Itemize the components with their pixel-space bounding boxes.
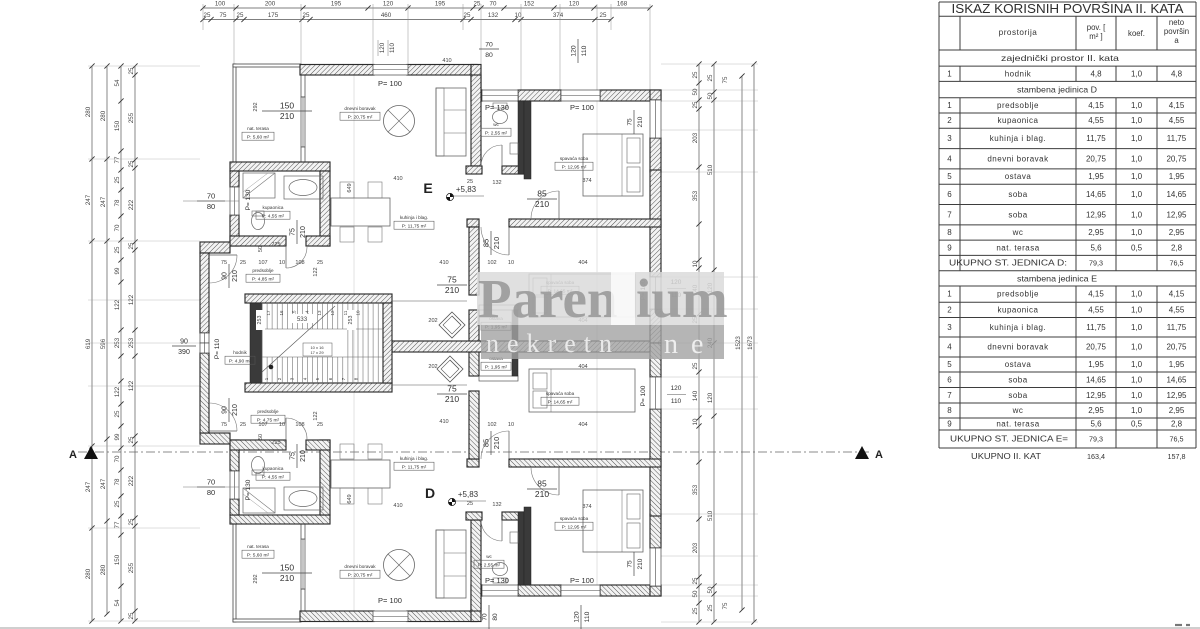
svg-text:10: 10 — [508, 260, 514, 266]
svg-text:99: 99 — [114, 433, 121, 440]
svg-text:12: 12 — [330, 310, 335, 316]
svg-text:5: 5 — [947, 360, 952, 369]
svg-text:510: 510 — [707, 510, 714, 521]
svg-text:80: 80 — [207, 202, 215, 211]
svg-text:210: 210 — [445, 285, 459, 295]
svg-text:25: 25 — [692, 362, 699, 369]
svg-text:6: 6 — [947, 190, 952, 199]
svg-text:1,0: 1,0 — [1131, 69, 1143, 78]
svg-text:4,15: 4,15 — [1169, 290, 1185, 299]
svg-text:1,95: 1,95 — [1169, 172, 1185, 181]
svg-text:50: 50 — [258, 434, 264, 440]
svg-text:374: 374 — [553, 12, 564, 19]
svg-text:4,15: 4,15 — [1088, 290, 1104, 299]
svg-text:25: 25 — [464, 12, 471, 19]
svg-text:25: 25 — [692, 577, 699, 584]
svg-text:hodnik: hodnik — [233, 350, 247, 355]
svg-text:163,4: 163,4 — [1087, 452, 1105, 461]
svg-text:nat. terasa: nat. terasa — [247, 544, 269, 549]
svg-text:70: 70 — [207, 478, 215, 487]
svg-text:P= 130: P= 130 — [485, 103, 509, 112]
svg-text:120: 120 — [569, 1, 580, 8]
svg-text:25: 25 — [204, 12, 211, 19]
svg-text:P= 100: P= 100 — [378, 79, 402, 88]
svg-text:P= 130: P= 130 — [245, 479, 252, 500]
svg-text:107: 107 — [258, 260, 267, 266]
svg-text:stambena jedinica E: stambena jedinica E — [1017, 274, 1097, 284]
svg-text:404: 404 — [578, 422, 587, 428]
svg-text:E: E — [423, 180, 432, 196]
svg-text:75: 75 — [221, 260, 227, 266]
svg-text:280: 280 — [100, 564, 107, 575]
svg-text:1,0: 1,0 — [1131, 172, 1143, 181]
svg-text:25: 25 — [114, 176, 121, 183]
svg-text:210: 210 — [492, 437, 501, 450]
svg-text:14,65: 14,65 — [1166, 375, 1187, 384]
svg-text:90: 90 — [180, 339, 188, 346]
svg-text:dnevni boravak: dnevni boravak — [987, 343, 1049, 352]
svg-text:2,95: 2,95 — [1169, 228, 1185, 237]
svg-text:1,0: 1,0 — [1131, 134, 1143, 143]
svg-text:76,5: 76,5 — [1170, 259, 1184, 268]
svg-text:P= 100: P= 100 — [378, 596, 402, 605]
svg-text:1,0: 1,0 — [1131, 360, 1143, 369]
svg-text:P: 4,90 m²: P: 4,90 m² — [229, 359, 252, 365]
svg-text:4,55: 4,55 — [1169, 116, 1185, 125]
svg-text:54: 54 — [114, 79, 121, 86]
svg-text:253: 253 — [128, 337, 135, 348]
svg-text:10: 10 — [508, 422, 514, 428]
svg-text:4,55: 4,55 — [1169, 305, 1185, 314]
svg-text:132: 132 — [492, 502, 501, 508]
svg-text:nekretn: nekretn — [486, 329, 620, 358]
svg-text:210: 210 — [637, 558, 644, 569]
svg-text:50: 50 — [692, 590, 699, 597]
svg-text:75: 75 — [447, 384, 457, 394]
svg-text:75: 75 — [290, 452, 297, 460]
svg-text:P: 4,55 m²: P: 4,55 m² — [262, 214, 285, 220]
svg-text:210: 210 — [445, 394, 459, 404]
svg-text:površin: površin — [1164, 27, 1189, 36]
svg-text:+5,83: +5,83 — [458, 490, 479, 499]
svg-text:150: 150 — [114, 120, 121, 131]
svg-text:1523: 1523 — [735, 336, 742, 350]
svg-text:25: 25 — [474, 1, 481, 8]
svg-text:4: 4 — [947, 154, 952, 163]
svg-text:120: 120 — [707, 392, 714, 403]
svg-text:25: 25 — [317, 422, 323, 428]
svg-text:25: 25 — [240, 260, 246, 266]
svg-text:510: 510 — [707, 164, 714, 175]
svg-text:649: 649 — [347, 494, 353, 503]
svg-text:390: 390 — [178, 349, 190, 356]
svg-text:77: 77 — [114, 156, 121, 163]
svg-text:ostava: ostava — [1005, 360, 1032, 369]
svg-text:122: 122 — [114, 299, 121, 310]
svg-text:5,6: 5,6 — [1090, 243, 1102, 252]
svg-text:9: 9 — [947, 420, 952, 429]
svg-text:122: 122 — [313, 267, 319, 276]
svg-text:A: A — [69, 449, 77, 461]
svg-text:1,95: 1,95 — [1088, 360, 1104, 369]
svg-text:120: 120 — [574, 611, 581, 623]
svg-text:75: 75 — [290, 228, 297, 236]
svg-text:12,95: 12,95 — [1166, 391, 1187, 400]
svg-text:25: 25 — [128, 67, 135, 74]
svg-text:292: 292 — [253, 102, 259, 111]
svg-text:1,0: 1,0 — [1131, 323, 1143, 332]
svg-text:203: 203 — [692, 132, 699, 143]
svg-text:25: 25 — [114, 410, 121, 417]
svg-text:75: 75 — [221, 422, 227, 428]
svg-text:25: 25 — [303, 12, 310, 19]
svg-text:70: 70 — [114, 224, 121, 231]
svg-text:wc: wc — [1012, 228, 1024, 237]
svg-text:10: 10 — [279, 260, 285, 266]
svg-text:4,55: 4,55 — [1088, 116, 1104, 125]
svg-text:1,0: 1,0 — [1131, 116, 1143, 125]
svg-text:75: 75 — [447, 275, 457, 285]
svg-text:200: 200 — [265, 1, 276, 8]
svg-text:2: 2 — [947, 305, 952, 314]
svg-text:255: 255 — [128, 562, 135, 573]
svg-text:50: 50 — [707, 586, 714, 593]
svg-text:102: 102 — [487, 260, 496, 266]
svg-text:203: 203 — [692, 542, 699, 553]
svg-text:195: 195 — [435, 1, 446, 8]
svg-text:14,65: 14,65 — [1166, 190, 1187, 199]
svg-text:280: 280 — [85, 568, 92, 579]
svg-text:1: 1 — [947, 69, 952, 78]
svg-text:4,8: 4,8 — [1090, 69, 1102, 78]
svg-text:stambena jedinica D: stambena jedinica D — [1017, 85, 1097, 95]
svg-text:13: 13 — [317, 310, 322, 316]
svg-text:5,6: 5,6 — [1090, 420, 1102, 429]
svg-text:P: 12,95 m²: P: 12,95 m² — [562, 165, 587, 171]
svg-text:1,0: 1,0 — [1131, 343, 1143, 352]
svg-text:P: 2,55 m²: P: 2,55 m² — [478, 563, 501, 569]
svg-text:122: 122 — [128, 380, 135, 391]
svg-text:649: 649 — [347, 183, 353, 192]
svg-text:70: 70 — [490, 1, 497, 8]
svg-text:90: 90 — [222, 406, 229, 414]
svg-text:222: 222 — [128, 199, 135, 210]
svg-text:17: 17 — [266, 310, 271, 316]
svg-text:110: 110 — [584, 611, 591, 622]
svg-text:253: 253 — [114, 337, 121, 348]
svg-text:76,5: 76,5 — [1170, 435, 1184, 444]
svg-text:157,8: 157,8 — [1168, 452, 1186, 461]
svg-text:ISKAZ KORISNIH POVRŠINA II. KA: ISKAZ KORISNIH POVRŠINA II. KATA — [952, 1, 1185, 16]
svg-text:predsoblje: predsoblje — [997, 290, 1039, 299]
svg-text:3: 3 — [947, 323, 952, 332]
svg-text:247: 247 — [85, 194, 92, 205]
svg-text:25: 25 — [128, 518, 135, 525]
svg-text:1,0: 1,0 — [1131, 190, 1143, 199]
svg-text:25: 25 — [128, 612, 135, 619]
svg-text:1,95: 1,95 — [1088, 172, 1104, 181]
svg-text:353: 353 — [692, 484, 699, 495]
svg-text:11,75: 11,75 — [1086, 134, 1106, 143]
svg-text:D: D — [425, 485, 435, 501]
svg-text:75: 75 — [220, 12, 227, 19]
svg-text:UKUPNO ST. JEDNICA D:: UKUPNO ST. JEDNICA D: — [949, 259, 1067, 268]
svg-text:410: 410 — [439, 260, 448, 266]
svg-text:120: 120 — [379, 42, 386, 53]
svg-text:P: 12,95 m²: P: 12,95 m² — [562, 525, 587, 531]
svg-text:1,0: 1,0 — [1131, 305, 1143, 314]
svg-text:7: 7 — [947, 210, 952, 219]
svg-text:16: 16 — [279, 310, 284, 316]
svg-text:50: 50 — [707, 92, 714, 99]
svg-text:90: 90 — [222, 272, 229, 280]
svg-text:132: 132 — [492, 180, 501, 186]
svg-text:85: 85 — [537, 479, 547, 489]
svg-text:Paren: Paren — [478, 268, 618, 329]
svg-text:80: 80 — [492, 613, 499, 621]
svg-text:202: 202 — [428, 364, 437, 370]
svg-text:kupaonica: kupaonica — [263, 205, 284, 210]
svg-text:75: 75 — [627, 118, 634, 126]
svg-text:25: 25 — [240, 422, 246, 428]
svg-text:wc: wc — [486, 554, 492, 559]
svg-text:20,75: 20,75 — [1086, 154, 1107, 163]
svg-text:404: 404 — [578, 364, 587, 370]
svg-text:25: 25 — [114, 246, 121, 253]
svg-text:P: 2,55 m²: P: 2,55 m² — [485, 131, 508, 137]
svg-text:0,5: 0,5 — [1131, 420, 1143, 429]
svg-text:1673: 1673 — [747, 336, 754, 350]
svg-text:7: 7 — [947, 391, 952, 400]
svg-text:596: 596 — [100, 338, 107, 349]
svg-text:A: A — [875, 449, 883, 461]
svg-text:225: 225 — [271, 440, 280, 446]
svg-text:210: 210 — [637, 116, 644, 127]
svg-text:54: 54 — [114, 599, 121, 606]
svg-text:460: 460 — [381, 12, 392, 19]
svg-text:25: 25 — [600, 12, 607, 19]
svg-text:79,3: 79,3 — [1089, 259, 1103, 268]
svg-text:374: 374 — [582, 178, 591, 184]
svg-text:1,0: 1,0 — [1131, 228, 1143, 237]
svg-text:2,8: 2,8 — [1171, 243, 1183, 252]
svg-text:12,95: 12,95 — [1086, 210, 1107, 219]
svg-text:2,95: 2,95 — [1088, 406, 1104, 415]
svg-text:120: 120 — [571, 45, 578, 57]
svg-text:+5,83: +5,83 — [456, 185, 477, 194]
svg-text:zajednički prostor II. kata: zajednički prostor II. kata — [1001, 53, 1119, 63]
svg-text:predsoblje: predsoblje — [997, 101, 1039, 110]
svg-text:kuhinja i blag.: kuhinja i blag. — [400, 215, 428, 220]
svg-text:280: 280 — [85, 106, 92, 117]
svg-text:kupaonica: kupaonica — [263, 466, 284, 471]
svg-text:P: 4,55 m²: P: 4,55 m² — [262, 475, 285, 481]
svg-text:110: 110 — [671, 398, 682, 405]
svg-text:UKUPNO ST. JEDNICA E=: UKUPNO ST. JEDNICA E= — [950, 435, 1068, 444]
svg-text:kupaonica: kupaonica — [998, 305, 1039, 314]
svg-text:100: 100 — [215, 1, 226, 8]
svg-text:140: 140 — [692, 390, 699, 401]
svg-text:dnevni boravak: dnevni boravak — [344, 106, 376, 111]
svg-text:P: 5,60 m²: P: 5,60 m² — [247, 135, 270, 141]
svg-text:77: 77 — [114, 521, 121, 528]
svg-text:nat. terasa: nat. terasa — [996, 420, 1039, 429]
svg-text:m² ]: m² ] — [1089, 32, 1102, 41]
svg-text:25: 25 — [128, 436, 135, 443]
svg-text:soba: soba — [1008, 210, 1027, 219]
svg-text:210: 210 — [535, 489, 549, 499]
svg-text:70: 70 — [114, 455, 121, 462]
svg-text:1,0: 1,0 — [1131, 290, 1143, 299]
svg-text:122: 122 — [128, 294, 135, 305]
svg-text:soba: soba — [1008, 375, 1027, 384]
svg-text:25: 25 — [707, 604, 714, 611]
svg-text:nat. terasa: nat. terasa — [996, 243, 1039, 252]
svg-text:P= 130: P= 130 — [245, 189, 252, 210]
svg-text:14,65: 14,65 — [1086, 190, 1107, 199]
svg-text:150: 150 — [280, 563, 294, 573]
svg-text:9: 9 — [947, 243, 952, 252]
svg-text:kupaonica: kupaonica — [998, 116, 1039, 125]
svg-text:4,8: 4,8 — [1171, 69, 1183, 78]
svg-text:108: 108 — [295, 260, 304, 266]
svg-text:1,0: 1,0 — [1131, 101, 1143, 110]
svg-text:25: 25 — [692, 607, 699, 614]
svg-text:a: a — [1174, 36, 1179, 45]
svg-text:120: 120 — [383, 1, 394, 8]
svg-text:wc: wc — [1012, 406, 1024, 415]
svg-text:spavaća soba: spavaća soba — [546, 391, 575, 396]
svg-text:222: 222 — [128, 475, 135, 486]
svg-text:3: 3 — [947, 134, 952, 143]
svg-text:75: 75 — [722, 602, 729, 609]
svg-text:99: 99 — [114, 267, 121, 274]
svg-text:4,55: 4,55 — [1088, 305, 1104, 314]
svg-text:P: 11,75 m²: P: 11,75 m² — [402, 465, 427, 471]
svg-text:11,75: 11,75 — [1167, 323, 1187, 332]
svg-text:1,0: 1,0 — [1131, 406, 1143, 415]
svg-text:4: 4 — [947, 343, 952, 352]
svg-text:410: 410 — [393, 503, 402, 509]
svg-text:70: 70 — [207, 192, 215, 201]
svg-text:nat. terasa: nat. terasa — [247, 126, 269, 131]
svg-text:108: 108 — [295, 422, 304, 428]
svg-text:spavaća soba: spavaća soba — [560, 516, 589, 521]
svg-text:1: 1 — [947, 290, 952, 299]
svg-text:10: 10 — [279, 422, 285, 428]
svg-text:0,5: 0,5 — [1131, 243, 1143, 252]
svg-text:25: 25 — [114, 500, 121, 507]
svg-text:20,75: 20,75 — [1086, 343, 1107, 352]
svg-text:168: 168 — [617, 1, 628, 8]
svg-text:20,75: 20,75 — [1166, 154, 1187, 163]
svg-text:85: 85 — [482, 239, 491, 247]
svg-text:1,0: 1,0 — [1131, 391, 1143, 400]
svg-text:247: 247 — [100, 196, 107, 207]
svg-text:P: 20,75 m²: P: 20,75 m² — [348, 115, 373, 121]
svg-text:247: 247 — [85, 481, 92, 492]
svg-text:253: 253 — [257, 316, 263, 325]
svg-text:1,95: 1,95 — [1169, 360, 1185, 369]
svg-text:ne: ne — [664, 329, 716, 360]
svg-text:P= 130: P= 130 — [485, 576, 509, 585]
svg-text:210: 210 — [300, 450, 307, 462]
svg-text:210: 210 — [280, 111, 294, 121]
svg-text:70: 70 — [485, 42, 493, 49]
svg-text:17 x 29: 17 x 29 — [310, 350, 324, 355]
svg-text:78: 78 — [114, 199, 121, 206]
svg-text:12,95: 12,95 — [1086, 391, 1107, 400]
svg-text:predsoblje: predsoblje — [252, 268, 274, 273]
svg-text:25: 25 — [317, 260, 323, 266]
svg-text:410: 410 — [393, 176, 402, 182]
svg-text:79,3: 79,3 — [1089, 435, 1103, 444]
svg-text:410: 410 — [439, 419, 448, 425]
svg-text:78: 78 — [114, 478, 121, 485]
svg-text:132: 132 — [488, 12, 499, 19]
svg-text:11,75: 11,75 — [1086, 323, 1106, 332]
svg-text:175: 175 — [268, 12, 279, 19]
svg-text:P: 20,75 m²: P: 20,75 m² — [348, 573, 373, 579]
svg-text:pov. [: pov. [ — [1087, 23, 1106, 32]
svg-text:predsoblje: predsoblje — [257, 409, 279, 414]
svg-text:110: 110 — [389, 43, 396, 53]
svg-text:P: 11,75 m²: P: 11,75 m² — [402, 224, 427, 230]
svg-text:dnevni boravak: dnevni boravak — [987, 154, 1049, 163]
svg-text:107: 107 — [258, 422, 267, 428]
svg-text:619: 619 — [85, 338, 92, 349]
svg-text:10: 10 — [692, 260, 699, 267]
svg-text:255: 255 — [128, 112, 135, 123]
svg-text:25: 25 — [128, 160, 135, 167]
svg-text:ium: ium — [636, 268, 728, 329]
svg-text:4,15: 4,15 — [1088, 101, 1104, 110]
svg-text:110: 110 — [581, 45, 588, 56]
svg-text:247: 247 — [100, 478, 107, 489]
svg-text:210: 210 — [232, 404, 239, 416]
svg-text:75: 75 — [627, 560, 634, 568]
svg-text:50: 50 — [692, 88, 699, 95]
svg-text:P: 14,65 m²: P: 14,65 m² — [548, 400, 573, 406]
svg-text:wc: wc — [493, 122, 499, 127]
svg-text:150: 150 — [280, 101, 294, 111]
svg-text:152: 152 — [524, 1, 535, 8]
svg-text:25: 25 — [467, 179, 473, 185]
svg-text:hodnik: hodnik — [1005, 69, 1032, 78]
svg-text:280: 280 — [100, 110, 107, 121]
svg-text:2: 2 — [947, 116, 952, 125]
svg-text:1,0: 1,0 — [1131, 375, 1143, 384]
svg-text:10: 10 — [692, 418, 699, 425]
svg-text:25: 25 — [128, 242, 135, 249]
svg-text:11,75: 11,75 — [1167, 134, 1187, 143]
svg-text:122: 122 — [114, 386, 121, 397]
svg-text:253: 253 — [348, 316, 354, 325]
svg-text:210: 210 — [232, 270, 239, 282]
svg-text:225: 225 — [271, 242, 280, 248]
svg-text:12,95: 12,95 — [1166, 210, 1187, 219]
svg-text:195: 195 — [331, 1, 342, 8]
svg-text:80: 80 — [207, 488, 215, 497]
svg-text:25: 25 — [707, 74, 714, 81]
svg-text:dnevni boravak: dnevni boravak — [344, 564, 376, 569]
svg-text:374: 374 — [582, 504, 591, 510]
svg-text:1,0: 1,0 — [1131, 154, 1143, 163]
svg-text:14,65: 14,65 — [1086, 375, 1107, 384]
svg-text:kuhinja i blag.: kuhinja i blag. — [400, 456, 428, 461]
svg-text:P= 110: P= 110 — [214, 338, 221, 359]
svg-text:210: 210 — [492, 237, 501, 250]
